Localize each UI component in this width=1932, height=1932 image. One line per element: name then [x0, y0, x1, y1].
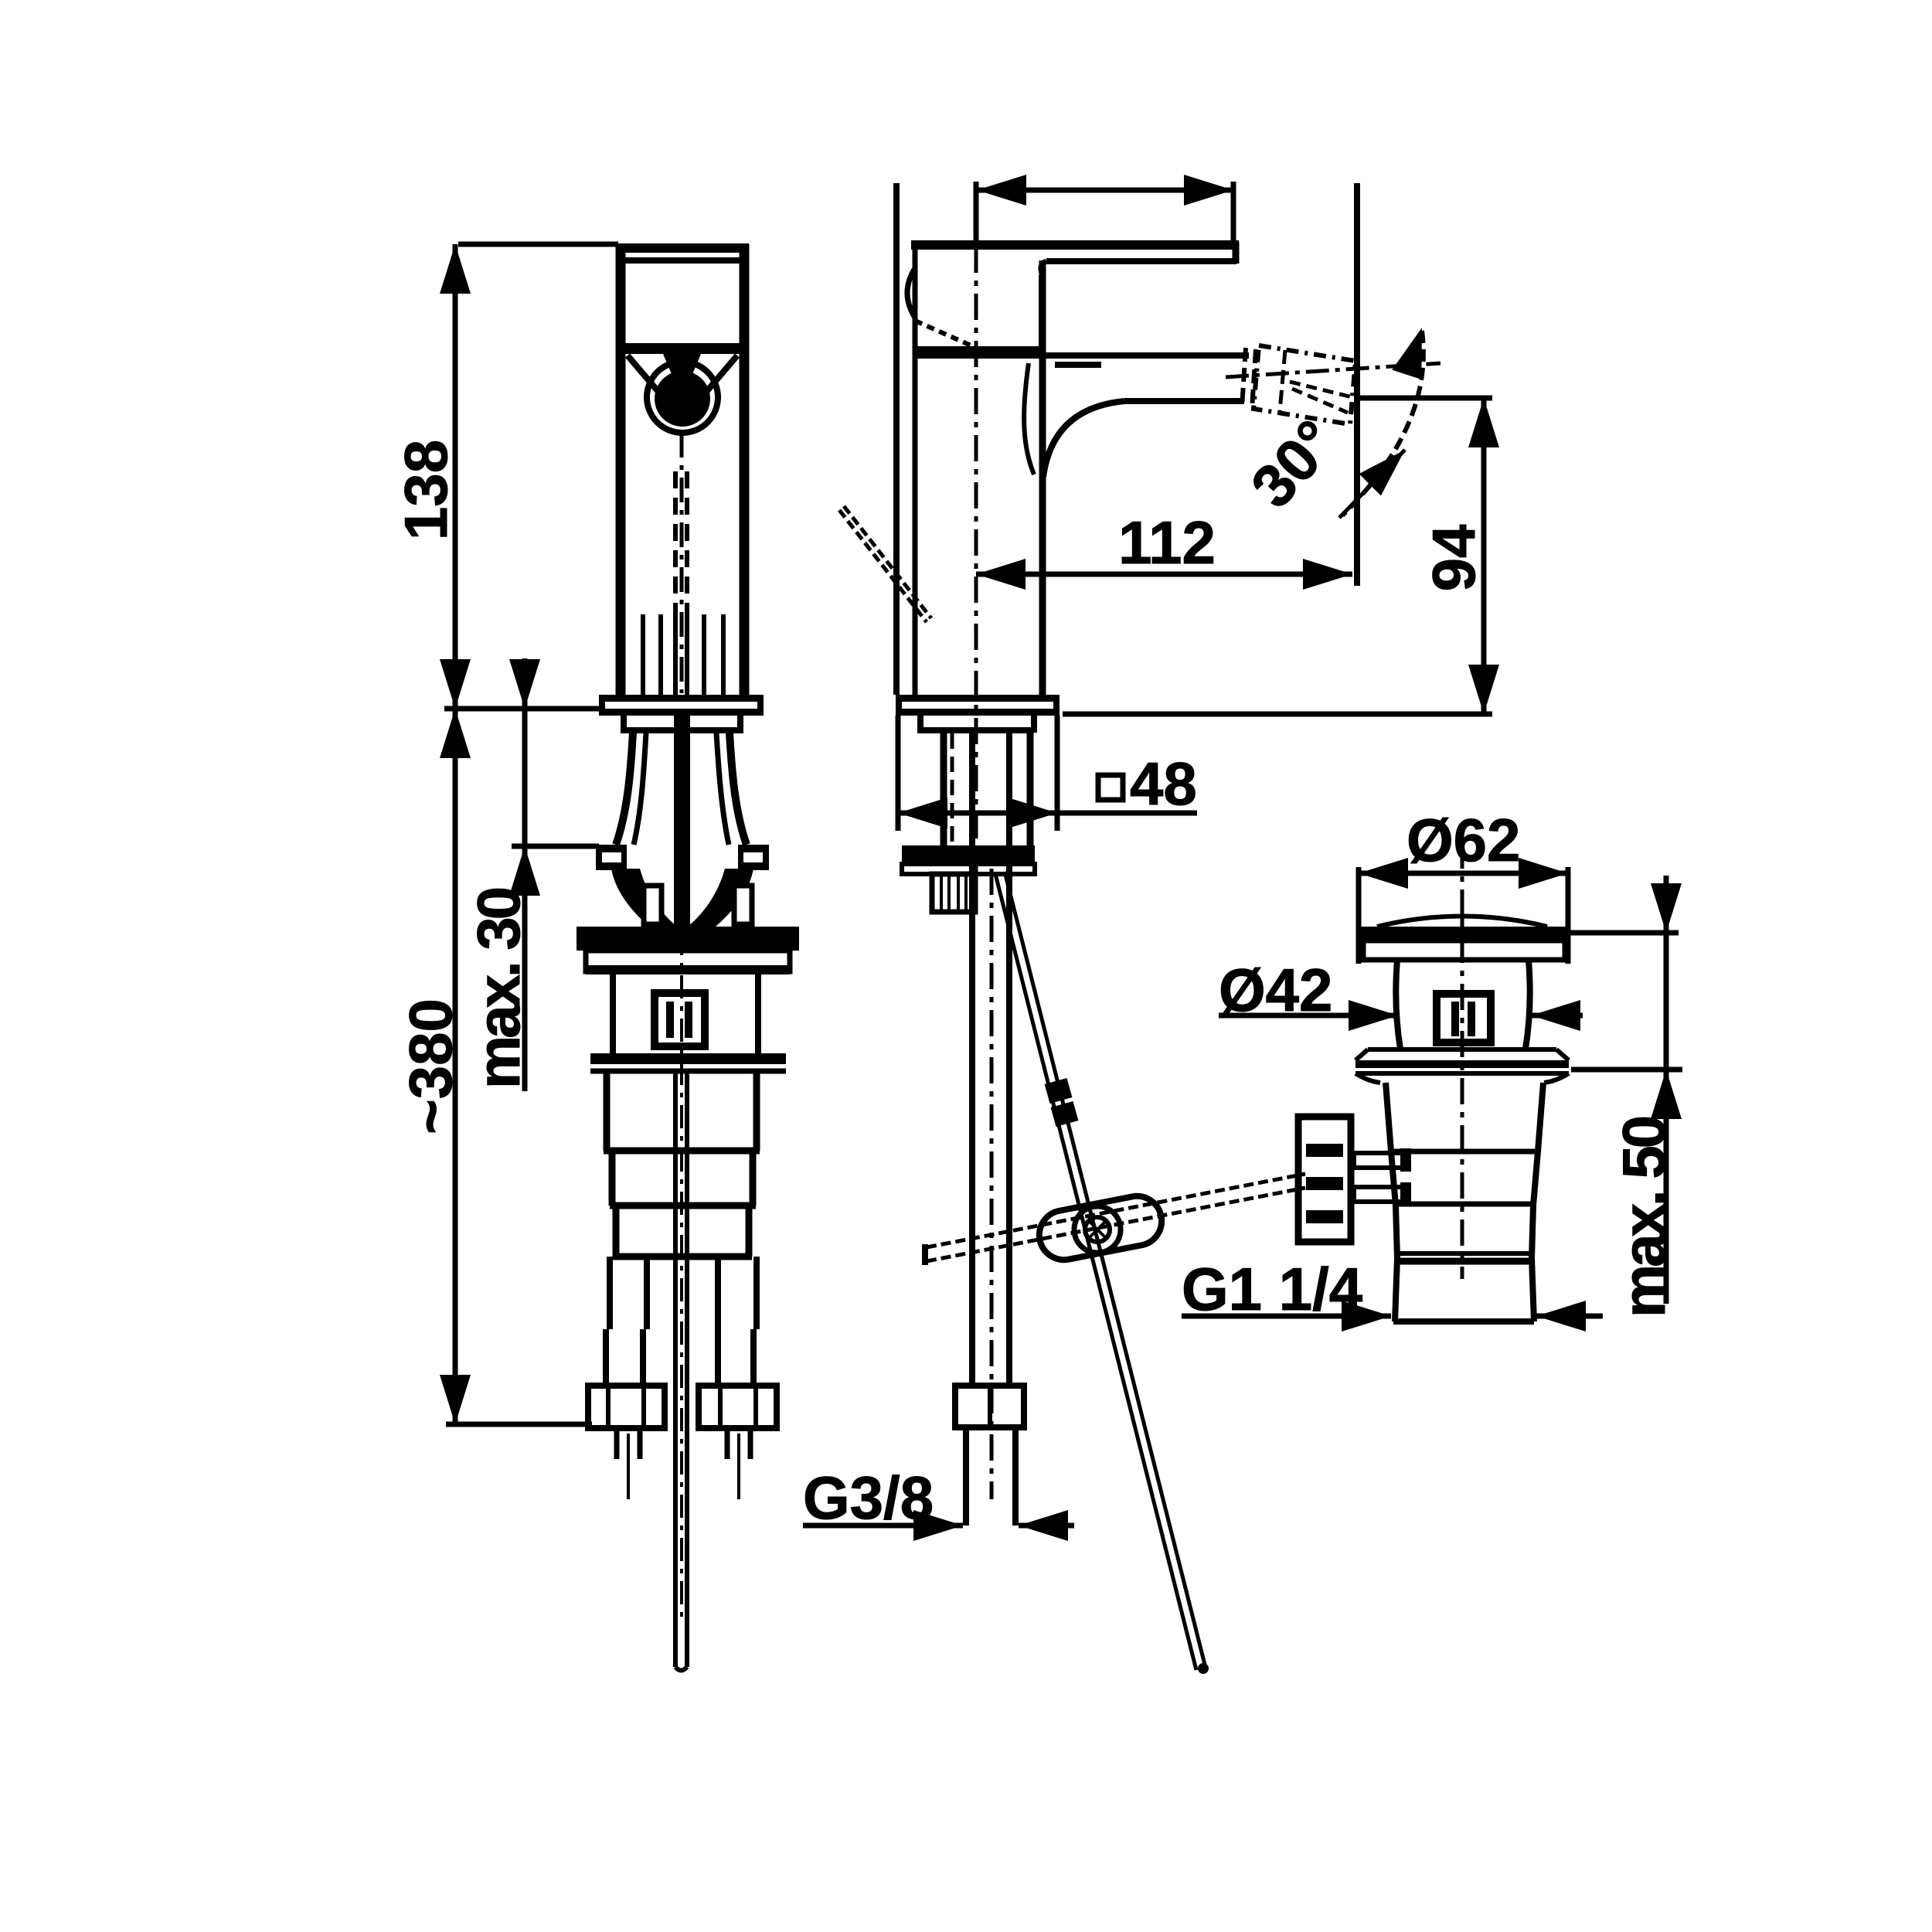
svg-text:112: 112 [1118, 509, 1216, 577]
svg-text:138: 138 [392, 440, 460, 540]
svg-text:48: 48 [1130, 750, 1197, 818]
svg-text:max. 50: max. 50 [1610, 1117, 1678, 1318]
svg-text:94: 94 [1420, 525, 1488, 592]
svg-text:Ø62: Ø62 [1406, 806, 1520, 874]
svg-text:G1 1/4: G1 1/4 [1182, 1255, 1362, 1323]
svg-text:~380: ~380 [396, 998, 464, 1134]
svg-text:max. 30: max. 30 [464, 888, 532, 1089]
